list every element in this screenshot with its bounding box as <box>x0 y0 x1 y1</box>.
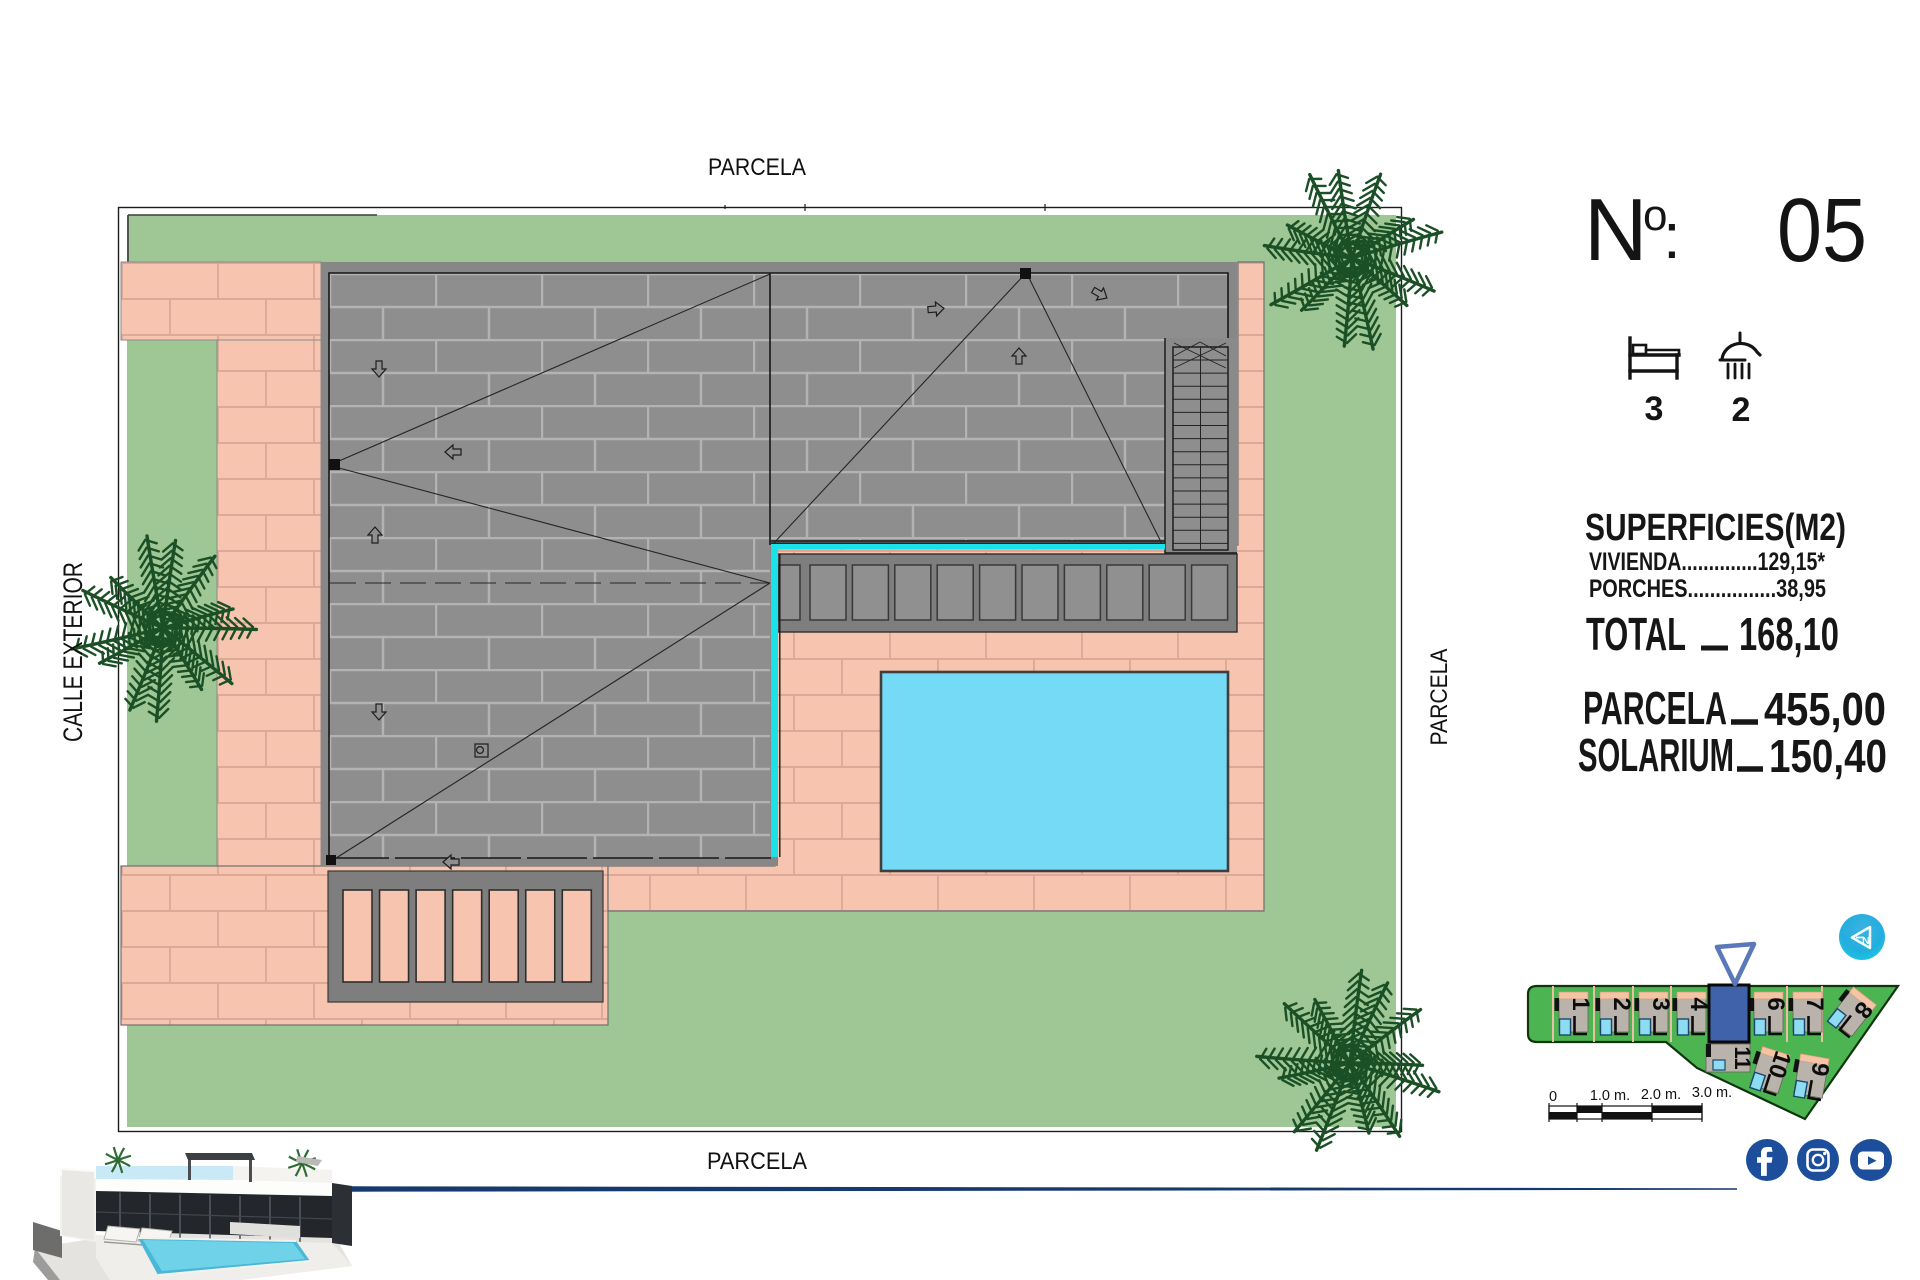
svg-text:SOLARIUM: SOLARIUM <box>1578 729 1734 781</box>
svg-text:SUPERFICIES(M2): SUPERFICIES(M2) <box>1585 507 1846 549</box>
svg-text:2.0 m.: 2.0 m. <box>1641 1087 1681 1103</box>
svg-text::: : <box>1663 200 1681 272</box>
svg-text:1: 1 <box>1567 997 1594 1010</box>
svg-text:6: 6 <box>1762 997 1789 1010</box>
svg-text:TOTAL: TOTAL <box>1586 608 1686 660</box>
svg-text:PARCELA: PARCELA <box>1426 649 1453 746</box>
svg-text:7: 7 <box>1801 997 1828 1010</box>
svg-text:3: 3 <box>1647 997 1674 1010</box>
svg-text:PARCELA: PARCELA <box>707 1148 807 1175</box>
svg-text:168,10: 168,10 <box>1739 608 1839 660</box>
svg-text:455,00: 455,00 <box>1764 683 1886 735</box>
svg-text:3: 3 <box>1645 390 1664 428</box>
svg-text:05: 05 <box>1777 181 1867 281</box>
svg-text:PORCHES................38,95: PORCHES................38,95 <box>1589 575 1826 603</box>
svg-text:PARCELA: PARCELA <box>708 154 806 181</box>
svg-text:VIVIENDA..............129,15*: VIVIENDA..............129,15* <box>1589 548 1825 576</box>
svg-text:N: N <box>1862 935 1870 947</box>
svg-text:PARCELA: PARCELA <box>1583 682 1727 734</box>
svg-text:1.0 m.: 1.0 m. <box>1590 1088 1630 1104</box>
svg-text:2: 2 <box>1608 997 1635 1010</box>
svg-text:150,40: 150,40 <box>1769 730 1887 782</box>
svg-text:N: N <box>1584 180 1648 279</box>
svg-text:3.0 m.: 3.0 m. <box>1692 1085 1732 1101</box>
svg-text:CALLE EXTERIOR: CALLE EXTERIOR <box>58 562 88 742</box>
svg-text:2: 2 <box>1732 391 1751 429</box>
svg-text:11: 11 <box>1730 1046 1755 1069</box>
svg-text:0: 0 <box>1549 1089 1557 1105</box>
